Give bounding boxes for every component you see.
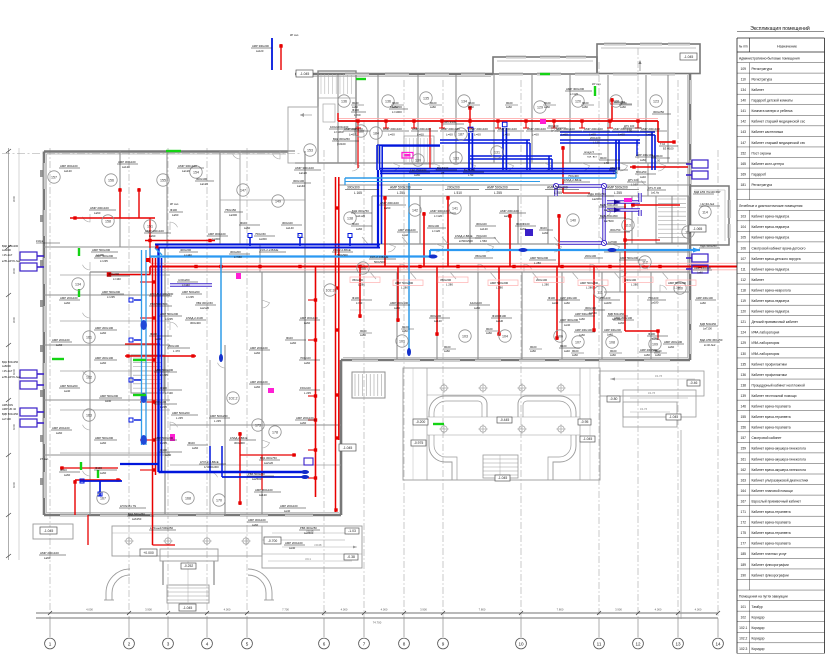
svg-text:141: 141 <box>740 109 746 113</box>
svg-text:168: 168 <box>185 496 191 500</box>
svg-text:130: 130 <box>415 158 421 162</box>
svg-text:134: 134 <box>740 88 746 92</box>
svg-text:АМР 200х100: АМР 200х100 <box>285 541 303 545</box>
svg-text:6: 6 <box>323 641 326 646</box>
svg-text:103: 103 <box>740 215 746 219</box>
svg-text:ИФА лаборатория: ИФА лаборатория <box>752 341 780 345</box>
svg-text:118: 118 <box>741 288 746 292</box>
svg-text:Lв60: Lв60 <box>697 271 703 275</box>
svg-text:АМР 200х100: АМР 200х100 <box>641 127 660 131</box>
svg-text:181: 181 <box>740 183 746 187</box>
svg-text:200х100: 200х100 <box>155 400 166 404</box>
svg-text:138: 138 <box>347 216 353 220</box>
svg-text:ВД1 300х750: ВД1 300х750 <box>260 456 277 460</box>
svg-text:156: 156 <box>740 426 746 430</box>
svg-text:-1.045: -1.045 <box>183 606 193 610</box>
svg-text:АМР 500х200: АМР 500х200 <box>620 256 639 260</box>
svg-text:175: 175 <box>740 531 746 535</box>
svg-text:КТ сал.: КТ сал. <box>40 457 49 461</box>
svg-text:Ф100: Ф100 <box>360 329 367 333</box>
svg-text:Кабинет неотложной помощи: Кабинет неотложной помощи <box>752 394 797 398</box>
svg-text:-0.46: -0.46 <box>690 381 698 385</box>
svg-text:АМР 300х100: АМР 300х100 <box>430 209 449 213</box>
svg-text:Lв120: Lв120 <box>299 171 307 175</box>
svg-text:L=60: L=60 <box>561 132 568 136</box>
svg-text:173: 173 <box>255 423 261 427</box>
svg-text:АМР 500х200: АМР 500х200 <box>100 394 119 398</box>
svg-text:Lв60: Lв60 <box>392 105 398 109</box>
svg-text:Lв120: Lв120 <box>434 319 442 323</box>
svg-text:Lв60: Lв60 <box>64 301 71 305</box>
svg-text:ВДА КЛЯ 450х250: ВДА КЛЯ 450х250 <box>700 338 723 342</box>
svg-text:3000: 3000 <box>12 267 16 274</box>
svg-text:АМР 500х200: АМР 500х200 <box>580 281 599 285</box>
svg-text:опщук 5: опщук 5 <box>584 150 594 154</box>
svg-text:111: 111 <box>741 267 746 271</box>
svg-text:7.800: 7.800 <box>479 608 486 612</box>
svg-text:Кабинет врача-педиатра: Кабинет врача-педиатра <box>752 299 790 303</box>
svg-text:Ф100: Ф100 <box>95 466 102 470</box>
svg-text:АМР 500х200: АМР 500х200 <box>95 436 114 440</box>
svg-text:112: 112 <box>741 278 746 282</box>
svg-text:КУА-2-2-ВЗхЕ: КУА-2-2-ВЗхЕ <box>333 248 351 252</box>
svg-text:Lв60: Lв60 <box>640 158 646 162</box>
svg-text:Lв2х20: Lв2х20 <box>264 461 274 465</box>
svg-text:161: 161 <box>86 335 92 339</box>
svg-text:143: 143 <box>740 130 746 134</box>
svg-text:8: 8 <box>403 641 406 646</box>
svg-text:Lв60: Lв60 <box>520 227 527 231</box>
svg-text:АМР 200х100: АМР 200х100 <box>90 206 109 210</box>
svg-text:Ф100: Ф100 <box>392 101 399 105</box>
svg-text:АМР 500х200: АМР 500х200 <box>182 290 200 294</box>
svg-text:К19ув: К19ув <box>36 239 44 243</box>
svg-text:Б3 Ф100: Б3 Ф100 <box>652 154 663 158</box>
svg-text:142: 142 <box>412 208 418 212</box>
svg-text:Ф100: Ф100 <box>610 349 617 353</box>
svg-text:Lв60: Lв60 <box>402 329 408 333</box>
svg-text:350х200: 350х200 <box>440 278 451 282</box>
svg-text:ВДВ 700х300: ВДВ 700х300 <box>600 203 618 207</box>
svg-text:Ф100: Ф100 <box>352 222 359 226</box>
svg-text:Ф100: Ф100 <box>160 386 167 390</box>
svg-text:АМР 200х100: АМР 200х100 <box>500 209 519 213</box>
svg-text:L=60: L=60 <box>349 132 356 136</box>
svg-text:АМР 500х200: АМР 500х200 <box>694 266 711 270</box>
svg-text:187: 187 <box>458 132 464 136</box>
svg-text:162: 162 <box>740 468 746 472</box>
svg-text:L 235: L 235 <box>214 419 221 423</box>
svg-text:184: 184 <box>373 131 379 135</box>
svg-text:Экспликация помещений: Экспликация помещений <box>750 25 810 32</box>
svg-text:т.25-2АГ: т.25-2АГ <box>2 253 13 257</box>
svg-text:140: 140 <box>740 99 746 103</box>
svg-text:Lв1.№: Lв1.№ <box>651 191 659 195</box>
svg-text:L 50: L 50 <box>655 159 661 163</box>
svg-text:121: 121 <box>740 320 746 324</box>
svg-text:L 280: L 280 <box>446 283 453 287</box>
svg-text:Кабинет: Кабинет <box>752 88 765 92</box>
svg-text:Кабинет врача-терапевта: Кабинет врача-терапевта <box>752 426 791 430</box>
svg-text:Ф100: Ф100 <box>352 296 359 300</box>
svg-text:13: 13 <box>675 641 681 646</box>
svg-text:АМР 200х100: АМР 200х100 <box>575 328 592 332</box>
svg-text:3000: 3000 <box>12 195 16 202</box>
svg-text:134: 134 <box>75 282 81 286</box>
svg-text:Ф100: Ф100 <box>572 349 579 353</box>
svg-text:Ых0х100: Ых0х100 <box>470 301 482 305</box>
svg-text:Lв60: Lв60 <box>668 345 675 349</box>
svg-text:КТ: КТ <box>441 171 445 175</box>
svg-text:АМР 300х100: АМР 300х100 <box>208 232 226 236</box>
svg-text:АМР 200х100: АМР 200х100 <box>636 153 653 157</box>
svg-text:Пост охраны: Пост охраны <box>752 151 772 155</box>
svg-text:162: 162 <box>86 375 92 379</box>
svg-text:101: 101 <box>399 339 405 343</box>
svg-text:L=60: L=60 <box>589 132 596 136</box>
svg-text:158: 158 <box>105 219 111 223</box>
svg-text:Кабинет платных услуг: Кабинет платных услуг <box>752 552 788 556</box>
svg-text:АМР 200х100: АМР 200х100 <box>383 127 402 131</box>
svg-text:146: 146 <box>740 405 746 409</box>
svg-text:АМР 500х200: АМР 500х200 <box>102 290 121 294</box>
svg-text:-0.975: -0.975 <box>414 441 424 445</box>
svg-text:Гардероб детской комнаты: Гардероб детской комнаты <box>752 99 794 103</box>
svg-text:166: 166 <box>360 266 366 270</box>
svg-text:Ф100: Ф100 <box>655 349 662 353</box>
svg-text:Регистратура: Регистратура <box>752 183 773 187</box>
svg-text:Ф100: Ф100 <box>240 221 247 225</box>
svg-text:АМР 300х100: АМР 300х100 <box>295 166 314 170</box>
svg-text:167: 167 <box>100 496 106 500</box>
svg-text:L=60: L=60 <box>388 132 395 136</box>
svg-text:Lв60: Lв60 <box>474 306 481 310</box>
svg-text:-0.38: -0.38 <box>347 555 355 559</box>
svg-text:Lв300: Lв300 <box>229 213 237 217</box>
svg-text:Ф100: Ф100 <box>548 296 555 300</box>
svg-text:Lв2х20: Lв2х20 <box>200 306 210 310</box>
svg-text:Коридор: Коридор <box>752 647 765 651</box>
svg-text:700х100: 700х100 <box>300 356 311 360</box>
svg-text:124: 124 <box>740 331 746 335</box>
svg-text:АМР 500х200: АМР 500х200 <box>547 185 568 189</box>
svg-text:L 255: L 255 <box>397 191 405 195</box>
svg-text:Lв80: Lв80 <box>414 173 421 177</box>
svg-text:Lв8000: Lв8000 <box>2 248 11 252</box>
svg-text:133: 133 <box>453 156 459 160</box>
svg-text:131: 131 <box>494 150 500 154</box>
svg-text:Кабинет: Кабинет <box>752 278 765 282</box>
svg-text:300х250: 300х250 <box>653 110 664 114</box>
svg-text:138: 138 <box>740 383 746 387</box>
svg-text:АМР 500х200: АМР 500х200 <box>155 368 174 372</box>
svg-text:КЛАД-2-ВЗхЕ: КЛАД-2-ВЗхЕ <box>455 234 473 238</box>
svg-text:100х1000х200: 100х1000х200 <box>330 125 349 129</box>
svg-text:Lв60: Lв60 <box>304 321 311 325</box>
svg-text:200х200: 200х200 <box>447 185 460 189</box>
svg-text:Lв60: Lв60 <box>254 351 261 355</box>
svg-text:L=60: L=60 <box>446 132 453 136</box>
svg-text:Lв40: Lв40 <box>564 323 571 327</box>
svg-text:L 280: L 280 <box>401 286 408 290</box>
svg-text:ПДА 300х750: ПДА 300х750 <box>588 192 606 196</box>
svg-text:Lв2000: Lв2000 <box>592 197 602 201</box>
svg-text:+0.000: +0.000 <box>143 551 154 555</box>
svg-text:2: 2 <box>128 641 131 646</box>
svg-text:АМР 500х200: АМР 500х200 <box>395 281 414 285</box>
svg-text:156: 156 <box>108 178 114 182</box>
svg-text:L 280: L 280 <box>496 286 503 290</box>
svg-text:-0.80: -0.80 <box>610 397 618 401</box>
svg-text:151: 151 <box>147 224 153 228</box>
svg-text:-1.065: -1.065 <box>693 227 703 231</box>
svg-text:4.00х200: 4.00х200 <box>178 278 190 282</box>
svg-text:Lв7600: Lв7600 <box>608 240 617 244</box>
svg-text:Коридор: Коридор <box>752 626 765 630</box>
svg-text:Lв60: Lв60 <box>64 473 71 477</box>
svg-text:АМР 200х100: АМР 200х100 <box>52 426 70 430</box>
svg-text:Lв60: Lв60 <box>290 341 297 345</box>
svg-text:L=60: L=60 <box>618 132 625 136</box>
svg-text:БД2 300х750: БД2 300х750 <box>352 209 369 213</box>
svg-text:-0.200: -0.200 <box>416 420 426 424</box>
svg-text:Коридор: Коридор <box>752 637 765 641</box>
svg-text:т.25-2АГ: т.25-2АГ <box>2 369 13 373</box>
svg-text:К/УЛ-2-3-ВЗхЕ: К/УЛ-2-3-ВЗхЕ <box>200 460 219 464</box>
svg-text:АМР 200х100: АМР 200х100 <box>527 127 546 131</box>
svg-text:136: 136 <box>385 99 391 103</box>
svg-text:750х400: 750х400 <box>568 174 579 178</box>
svg-text:3000: 3000 <box>12 316 16 323</box>
svg-text:Кабинет ультразвуковой диагнос: Кабинет ультразвуковой диагностики <box>752 478 809 482</box>
svg-text:109: 109 <box>740 67 746 71</box>
svg-text:АМР 200х100: АМР 200х100 <box>40 551 59 555</box>
svg-text:141: 141 <box>452 206 458 210</box>
svg-text:Лечебные и диагностические пом: Лечебные и диагностические помещения <box>739 204 803 208</box>
svg-text:АМР 300х200: АМР 300х200 <box>252 44 269 48</box>
svg-text:АМР 500х200: АМР 500х200 <box>92 248 111 252</box>
svg-text:102.1: 102.1 <box>739 626 747 630</box>
svg-text:114: 114 <box>702 210 708 214</box>
svg-text:300х100: 300х100 <box>548 124 559 128</box>
svg-text:Lв60: Lв60 <box>430 105 436 109</box>
svg-text:102.2: 102.2 <box>739 637 747 641</box>
svg-text:АМР 300х200: АМР 300х200 <box>566 87 585 91</box>
svg-text:ЛВ2 300х150: ЛВ2 300х150 <box>196 301 213 305</box>
svg-text:L 255: L 255 <box>554 191 562 195</box>
svg-text:РВЗ 500х250: РВЗ 500х250 <box>248 472 265 476</box>
svg-text:-0.700: -0.700 <box>268 539 278 543</box>
svg-text:L 50: L 50 <box>468 173 474 177</box>
svg-text:L 470: L 470 <box>173 349 180 353</box>
svg-text:Lв40: Lв40 <box>564 349 570 353</box>
svg-text:Lв60: Lв60 <box>100 331 107 335</box>
svg-text:АМР 300х200: АМР 300х200 <box>560 318 579 322</box>
svg-text:Lв60: Lв60 <box>56 343 63 347</box>
svg-text:102.3: 102.3 <box>739 647 747 651</box>
svg-text:700х100: 700х100 <box>476 234 487 238</box>
svg-text:АМР 200х100: АМР 200х100 <box>560 296 577 300</box>
svg-text:КР сал.: КР сал. <box>592 82 602 86</box>
svg-text:171: 171 <box>740 510 746 514</box>
svg-text:КР сал.: КР сал. <box>170 202 179 206</box>
svg-text:L=235: L=235 <box>186 295 194 299</box>
svg-text:Кабинет врача-терапевта: Кабинет врача-терапевта <box>752 531 791 535</box>
svg-text:74.700: 74.700 <box>373 621 382 625</box>
svg-text:750х100: 750х100 <box>648 296 659 300</box>
svg-text:Кабинет колл-центра: Кабинет колл-центра <box>752 162 784 166</box>
svg-text:189: 189 <box>740 563 746 567</box>
svg-text:LвЫ0: LвЫ0 <box>496 319 504 323</box>
svg-text:L=440: L=440 <box>184 253 192 257</box>
svg-text:ва0: ва0 <box>504 214 509 218</box>
svg-text:-1.045: -1.045 <box>343 446 353 450</box>
svg-text:АМР Н5.Ч2: АМР Н5.Ч2 <box>2 407 17 411</box>
svg-text:Lв60: Lв60 <box>300 421 307 425</box>
svg-text:АМР 300х100: АМР 300х100 <box>60 164 78 168</box>
svg-text:Lв60: Lв60 <box>254 385 261 389</box>
svg-text:L 50: L 50 <box>604 161 610 165</box>
svg-text:300х400: 300х400 <box>190 321 201 325</box>
svg-text:Ф100: Ф100 <box>582 101 589 105</box>
svg-text:АМР 200х100: АМР 200х100 <box>95 356 114 360</box>
svg-text:300х750: 300х750 <box>610 228 621 232</box>
svg-text:Lв60: Lв60 <box>655 353 661 357</box>
svg-text:ДГЧ 100: ДГЧ 100 <box>624 124 635 128</box>
svg-text:Lв60: Lв60 <box>644 353 650 357</box>
svg-text:i=1.73: i=1.73 <box>655 375 662 378</box>
svg-text:АМР 200х100: АМР 200х100 <box>390 301 409 305</box>
svg-text:Lв60: Lв60 <box>394 306 401 310</box>
svg-text:Lв60: Lв60 <box>356 227 363 231</box>
svg-text:ДТЧ 100: ДТЧ 100 <box>628 178 639 182</box>
svg-text:Кабинет врача-педиатра: Кабинет врача-педиатра <box>752 236 790 240</box>
svg-text:7.700: 7.700 <box>282 608 289 612</box>
svg-text:Помещения на путях эвакуации: Помещения на путях эвакуации <box>739 594 788 598</box>
svg-text:КУА-2-2-ВЗхЕ: КУА-2-2-ВЗхЕ <box>260 248 278 252</box>
svg-text:i=0.1: i=0.1 <box>305 558 311 561</box>
svg-text:157: 157 <box>740 436 746 440</box>
svg-text:Кабинет врача-терапевта: Кабинет врача-терапевта <box>752 510 791 514</box>
svg-text:500х500: 500х500 <box>374 260 385 264</box>
svg-text:Lв40: Lв40 <box>284 509 291 513</box>
svg-text:300х300: 300х300 <box>234 441 245 445</box>
svg-text:Кабинет врача-педиатра: Кабинет врача-педиатра <box>752 225 790 229</box>
svg-text:-0.445: -0.445 <box>500 418 510 422</box>
svg-text:Lв60: Lв60 <box>384 206 391 210</box>
svg-text:Lва0: Lва0 <box>402 233 409 237</box>
svg-text:Lв60: Lв60 <box>444 349 450 353</box>
svg-text:L=60: L=60 <box>532 132 539 136</box>
svg-text:Кабинет врача-педиатра: Кабинет врача-педиатра <box>752 215 790 219</box>
svg-text:L 255: L 255 <box>614 191 622 195</box>
svg-text:Lв60: Lв60 <box>530 349 536 353</box>
svg-text:АМР 500х200: АМР 500х200 <box>210 414 228 418</box>
svg-text:L 280: L 280 <box>534 261 541 265</box>
svg-text:102: 102 <box>740 616 746 620</box>
svg-text:L 160: L 160 <box>631 183 638 187</box>
svg-text:АМР 200х100: АМР 200х100 <box>498 127 517 131</box>
svg-text:Lв60: Lв60 <box>582 105 588 109</box>
svg-text:-1.045: -1.045 <box>44 529 54 533</box>
svg-text:4: 4 <box>206 641 209 646</box>
svg-text:350х200: 350х200 <box>352 278 363 282</box>
svg-text:АМР 300х100: АМР 300х100 <box>178 164 197 168</box>
svg-text:L 280: L 280 <box>358 283 365 287</box>
svg-text:Lв40: Lв40 <box>105 399 112 403</box>
svg-text:АМР 200х100: АМР 200х100 <box>664 340 683 344</box>
svg-text:АМР 500х200: АМР 500х200 <box>487 185 508 189</box>
svg-text:178: 178 <box>272 430 278 434</box>
svg-text:106: 106 <box>557 334 563 338</box>
svg-text:300х100: 300х100 <box>282 221 293 225</box>
svg-text:300х300: 300х300 <box>347 185 360 189</box>
svg-text:L=1000: L=1000 <box>392 110 402 114</box>
svg-text:Кабинет профилактики: Кабинет профилактики <box>752 373 787 377</box>
svg-text:Lв2500: Lв2500 <box>252 477 262 481</box>
svg-text:Lв60: Lв60 <box>192 446 199 450</box>
svg-text:Lв60: Lв60 <box>652 337 659 341</box>
svg-text:АМР 300х100: АМР 300х100 <box>255 488 273 492</box>
svg-text:L=235: L=235 <box>160 373 168 377</box>
svg-text:Lв120: Lв120 <box>122 165 130 169</box>
svg-text:Lв60: Lв60 <box>100 441 107 445</box>
svg-text:L 510: L 510 <box>454 191 462 195</box>
svg-text:L=120: L=120 <box>570 92 579 96</box>
svg-text:Ф100Ф100: Ф100Ф100 <box>516 222 530 226</box>
svg-text:Lв140: Lв140 <box>297 184 305 188</box>
svg-text:1/1900х300: 1/1900х300 <box>204 465 219 469</box>
svg-text:Смотровой кабинет: Смотровой кабинет <box>752 436 783 440</box>
svg-text:АМР 200х100: АМР 200х100 <box>60 296 78 300</box>
svg-text:Lв60: Lв60 <box>360 333 366 337</box>
svg-text:ВД5 500х250: ВД5 500х250 <box>2 412 19 416</box>
svg-text:Ф100: Ф100 <box>544 101 551 105</box>
svg-text:Lв40: Lв40 <box>640 175 646 179</box>
svg-text:102.2: 102.2 <box>229 396 238 400</box>
svg-text:КЛАД-2-ВЗхЕ: КЛАД-2-ВЗхЕ <box>564 178 582 182</box>
svg-text:Lв60: Lв60 <box>172 213 179 217</box>
svg-text:Ф100: Ф100 <box>648 332 655 336</box>
svg-text:L=440: L=440 <box>182 283 190 287</box>
svg-text:L=60: L=60 <box>646 132 653 136</box>
svg-text:L 280: L 280 <box>674 286 681 290</box>
svg-text:Lв60: Lв60 <box>620 105 626 109</box>
svg-text:Lв7600: Lв7600 <box>604 219 614 223</box>
svg-text:101: 101 <box>740 605 746 609</box>
svg-text:12: 12 <box>635 641 641 646</box>
svg-text:149: 149 <box>275 199 281 203</box>
svg-text:ВД2 300х250: ВД2 300х250 <box>333 137 350 141</box>
svg-text:Кабинет врача-терапевта: Кабинет врача-терапевта <box>752 405 791 409</box>
svg-text:130: 130 <box>740 352 746 356</box>
svg-text:103: 103 <box>462 334 468 338</box>
svg-text:129: 129 <box>537 105 543 109</box>
svg-text:300х200: 300х200 <box>230 250 241 254</box>
svg-text:147: 147 <box>740 141 746 145</box>
svg-text:Lв40: Lв40 <box>64 389 71 393</box>
svg-text:170: 170 <box>216 498 222 502</box>
svg-text:136: 136 <box>341 99 347 103</box>
svg-text:L=1060: L=1060 <box>334 130 344 134</box>
svg-text:АМР 200х100: АМР 200х100 <box>398 228 416 232</box>
svg-text:Lв120: Lв120 <box>256 49 264 53</box>
svg-text:Комната матери и ребенка: Комната матери и ребенка <box>752 109 793 113</box>
svg-text:Кабинет плановой помощи: Кабинет плановой помощи <box>752 489 793 493</box>
svg-text:10: 10 <box>518 641 524 646</box>
svg-text:112: 112 <box>642 260 648 264</box>
svg-text:L 235: L 235 <box>176 416 183 420</box>
